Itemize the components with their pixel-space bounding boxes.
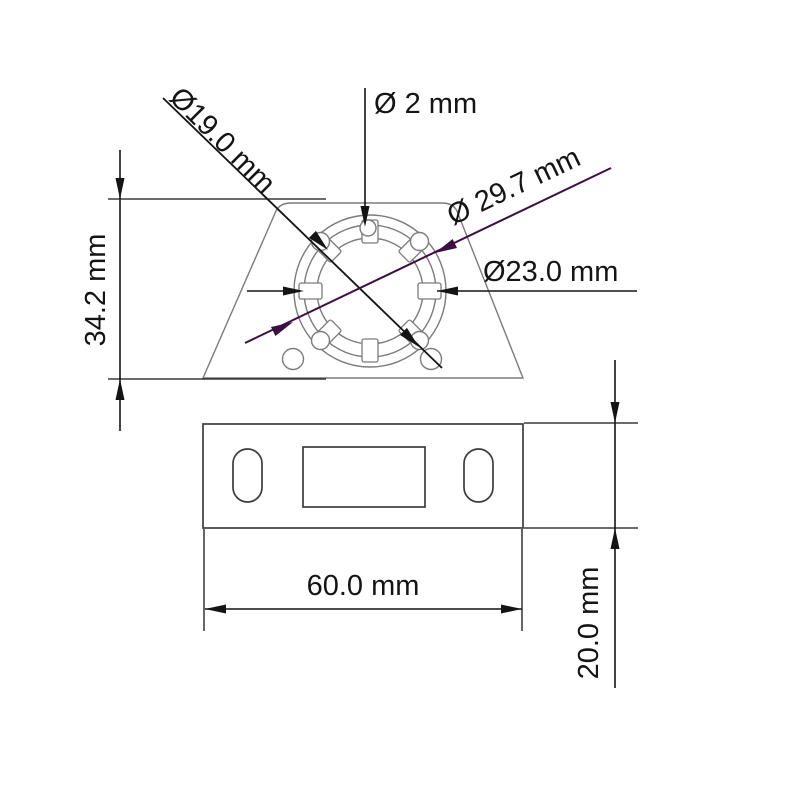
dim-label-pilot-hole: Ø 2 mm	[374, 88, 477, 120]
left-mounting-slot	[233, 449, 262, 502]
dim-label-ring-diameter: Ø23.0 mm	[483, 256, 618, 288]
arrowhead	[116, 379, 125, 400]
dim-label-body-height: 34.2 mm	[80, 225, 112, 355]
technical-drawing	[0, 0, 800, 800]
dim-label-plate-height: 20.0 mm	[573, 558, 605, 688]
dimension-pilot-hole	[361, 88, 370, 227]
plate-outline	[203, 424, 523, 528]
arrowhead	[435, 239, 457, 253]
arrowhead	[611, 402, 620, 423]
arrowhead	[205, 605, 226, 614]
front-view	[203, 424, 523, 528]
arrowhead	[271, 322, 293, 336]
dim-label-plate-width: 60.0 mm	[298, 570, 428, 602]
drawing-canvas: Ø19.0 mm Ø 2 mm Ø 29.7 mm Ø23.0 mm 34.2 …	[0, 0, 800, 800]
right-mounting-slot	[464, 449, 493, 502]
arrowhead	[116, 178, 125, 199]
arrowhead	[501, 605, 522, 614]
arrowhead	[611, 528, 620, 549]
center-cutout	[303, 447, 425, 507]
pilot-bump	[360, 220, 376, 236]
